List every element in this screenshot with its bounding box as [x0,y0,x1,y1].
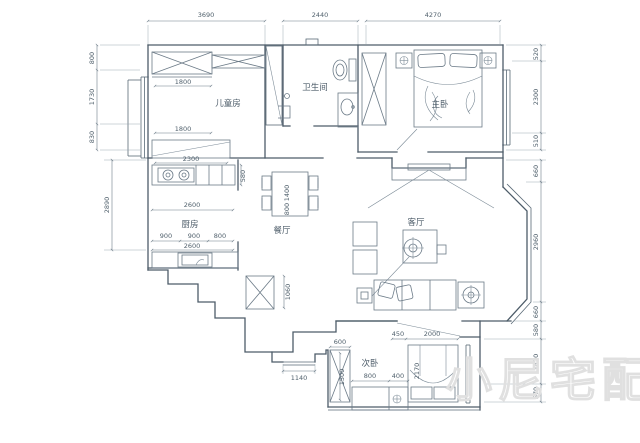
dim-right-7: 580 [532,324,540,336]
room-label-living: 客厅 [407,217,425,228]
dim-dining-length: 1400 [283,185,291,202]
living-cabinet-icon [353,222,377,274]
dim-top-2: 2440 [312,11,329,19]
sofa-icon [374,280,456,310]
plant-table-icon [458,282,484,308]
children-wardrobe-icon [152,52,265,77]
bay-window [503,187,527,321]
dim-kitchen-split-3: 800 [214,232,226,240]
master-door-leaf [397,129,417,150]
bathroom-sink-icon [338,93,358,127]
entry-shaft-icon [246,276,274,309]
dimensions: 3690 2440 4270 800 1730 830 2890 520 230… [88,11,546,402]
room-label-dining: 餐厅 [273,226,291,236]
dim-right-5: 2960 [532,234,540,251]
dim-top-1: 3690 [198,11,215,19]
dim-dining-width: 800 [283,203,291,215]
dim-secondary-offset: 450 [392,330,404,338]
room-label-master: 主卧 [431,99,449,110]
tv-cabinet-icon [368,164,494,208]
dim-top-3: 4270 [425,11,442,19]
dim-children-door: 1800 [175,125,192,133]
dim-kitchen-width2: 2600 [184,242,201,250]
dim-left-1: 800 [88,52,96,64]
room-labels: 儿童房 卫生间 主卧 厨房 餐厅 客厅 次卧 [181,82,449,369]
dim-secondary-bed-width: 2000 [424,330,441,338]
master-bed-icon [414,50,482,127]
dim-left-4: 2890 [103,197,111,214]
room-label-kitchen: 厨房 [181,219,198,230]
dim-entry-door: 1140 [291,374,308,382]
dim-kitchen-width: 2600 [184,201,201,209]
dim-kitchen-split-1: 900 [160,232,172,240]
stove-icon [158,168,194,182]
room-label-secondary: 次卧 [361,358,379,369]
dim-left-3: 830 [88,131,96,143]
toilet-icon [333,59,356,81]
dim-entry-shaft: 1060 [284,284,292,301]
bathroom-window [306,39,318,45]
dim-right-1: 520 [532,48,540,60]
coffee-table-icon [372,230,446,296]
dim-right-2: 2300 [532,89,540,106]
dim-kitchen-split-2: 900 [188,232,200,240]
sofa-side-table-icon [357,288,372,303]
floor-plan-drawing: 3690 2440 4270 800 1730 830 2890 520 230… [0,0,640,443]
dim-right-6: 660 [532,306,540,318]
dim-right-4: 660 [532,165,540,177]
room-label-children: 儿童房 [215,98,241,109]
dim-secondary-wardrobe-width: 600 [334,338,346,346]
dim-children-wardrobe: 1800 [175,78,192,86]
dim-secondary-gap: 400 [392,372,404,380]
floor-plan-page: 3690 2440 4270 800 1730 830 2890 520 230… [0,0,640,443]
watermark-logo: 小尼宅配 [446,353,640,407]
dim-kitchen-depth: 580 [239,170,247,182]
dim-secondary-bed-length: 2170 [413,363,421,380]
dim-kitchen-counter: 2300 [183,155,200,163]
master-wardrobe-icon [362,53,386,125]
dim-secondary-desk: 800 [364,372,376,380]
dim-left-2: 1730 [88,89,96,106]
dim-right-3: 510 [532,135,540,147]
room-label-bathroom: 卫生间 [302,82,328,93]
dim-secondary-wardrobe-height: 1500 [338,369,346,386]
master-nightstand-left-icon [396,53,412,68]
kitchen-sink-icon [152,252,238,268]
